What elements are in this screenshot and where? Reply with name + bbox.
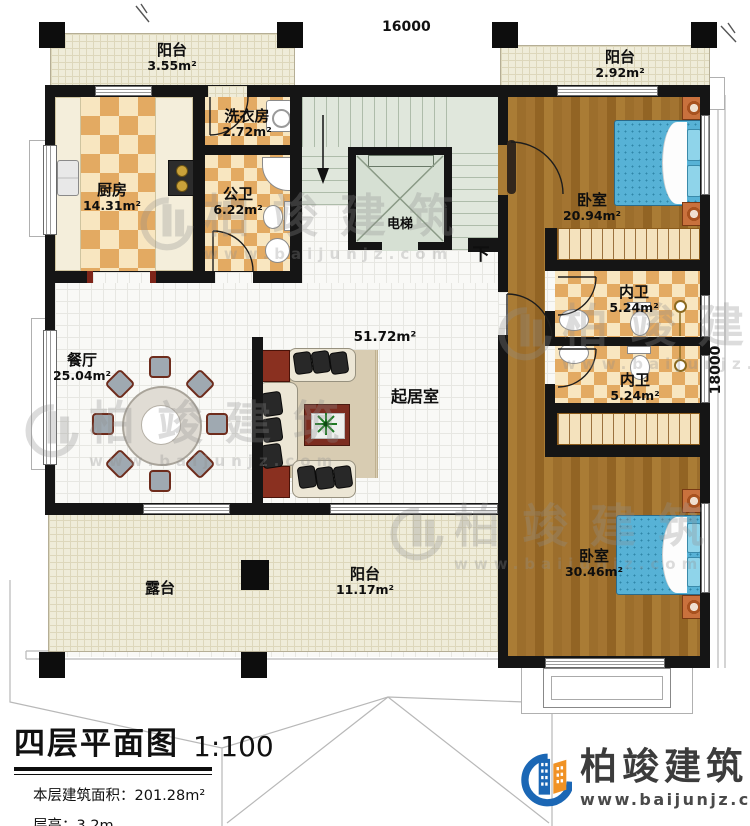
wall [545,228,557,271]
corridor-tile [302,250,498,283]
wardrobe-top [557,228,700,260]
room-label-ensuite-1: 内卫5.24m² [609,284,658,315]
dimension-right: 18000 [708,338,724,402]
room-label-kitchen: 厨房14.31m² [83,182,141,213]
side-table-1 [260,350,290,382]
bed-top-pillow-1 [687,129,701,161]
wall [545,260,710,271]
side-table-2 [260,466,290,498]
stair-down-label: 下 [473,246,490,265]
ensuite2-shower-head [674,359,687,372]
wardrobe-bottom [557,413,700,445]
bed-top-pillow-2 [687,165,701,197]
bay-window-inner-line [551,676,663,700]
ensuite1-sink [559,309,589,331]
stove-burner [176,180,188,192]
bedroom-top-door-leaf [507,140,516,194]
stair-treads-left [302,147,348,205]
note-floor-height: 层高：3.2m [33,814,274,826]
room-label-bedroom-bottom: 卧室30.46m² [565,548,623,579]
wall [545,445,710,457]
room-label-elevator: 电梯 [387,218,413,233]
wall [252,337,263,503]
wall [290,85,302,283]
dining-table-center [141,405,181,445]
wall [545,311,555,337]
door-opening-laundry-balcony [208,86,247,97]
brand-url: www.baijunjz.com [580,790,750,809]
bed-bottom-pillow-2 [687,557,701,587]
dining-chair [206,413,228,435]
stair-treads-right [452,147,498,250]
room-label-bedroom-top: 卧室20.94m² [563,192,621,223]
sofa-cushion [260,391,283,418]
coffee-table [304,404,350,446]
room-label-dining: 餐厅25.04m² [53,352,111,383]
floor-plan-canvas: 柏竣建筑 www.baijunjz.com 柏竣建筑 www.baijunjz.… [0,0,750,826]
room-label-living: 起居室 [391,388,439,406]
sofa-cushion [260,443,283,470]
wall [193,85,205,283]
window-bedroom-bottom-bay [545,658,665,668]
column [39,22,65,48]
window-living-balcony [330,504,498,514]
stove-burner [176,165,188,177]
sofa-cushion [333,465,354,489]
bed-bottom-duvet [662,517,687,593]
title-block: 四层平面图 1:100 本层建筑面积：201.28m² 层高：3.2m [14,718,274,826]
coffee-table-glass [311,413,345,439]
window-bedroom-top-balcony [557,86,658,96]
window-dining-left [43,330,57,465]
brand-logo-icon [520,748,572,812]
room-label-balcony-top-right: 阳台2.92m² [595,49,644,80]
column [492,22,518,48]
sofa-cushion [329,351,350,375]
sofa-cushion [311,350,332,374]
window-bedroom-bottom-right [701,503,710,593]
terrace-floor [48,505,502,652]
bed-bottom-pillow-1 [687,523,701,553]
wall [545,384,555,403]
ensuite2-toilet-tank [627,346,651,354]
window-dining-terrace [143,504,230,514]
bed-top-duvet [662,122,687,204]
bed-top [614,120,704,206]
window-ensuite1-right [701,295,710,337]
room-label-laundry: 洗衣房2.72m² [222,108,271,139]
bed-bottom [616,515,704,595]
window-kitchen-left [43,145,57,235]
dining-chair [149,356,171,378]
note-floor-area: 本层建筑面积：201.28m² [33,784,274,805]
door-opening-kitchen [93,272,150,283]
window-bedroom-top-right [701,115,710,195]
door-opening-hall [498,292,508,335]
room-label-public-bath: 公卫6.22m² [213,186,262,217]
column [241,560,269,590]
dining-chair [92,413,114,435]
sofa-cushion [297,465,318,489]
elevator-counterweight [368,155,434,167]
room-label-balcony-bottom: 阳台11.17m² [336,566,394,597]
window-sill-top-right [708,77,725,110]
dining-chair [149,470,171,492]
wall [545,403,557,457]
column [241,652,267,678]
drawing-title: 四层平面图 [14,718,179,763]
drawing-scale: 1:100 [193,730,274,763]
wall [545,403,710,413]
kitchen-sink [57,160,79,196]
room-label-living-area: 51.72m² [354,330,417,345]
stair-treads-top [302,97,452,147]
room-label-terrace: 露台 [145,580,175,597]
stair-landing-tile [302,205,348,250]
public-bath-toilet-bowl [263,205,283,229]
public-bath-sink [265,238,290,263]
door-opening-public-bath [215,272,253,283]
title-underline-thin [14,774,212,775]
column [277,22,303,48]
wall [205,145,290,155]
title-underline [14,767,212,771]
brand-logo: 柏竣建筑 www.baijunjz.com [520,748,750,812]
washer-drum [272,109,291,128]
kitchen-stove [168,160,194,196]
room-label-balcony-top-left: 阳台3.55m² [147,42,196,73]
bedroom-hall-floor [508,260,545,457]
ensuite1-shower-head [674,300,687,313]
sofa-cushion [260,417,283,444]
dimension-top: 16000 [382,19,431,35]
wall [545,337,710,346]
door-jamb-mark [150,271,156,283]
door-jamb-mark [87,271,93,283]
column [39,652,65,678]
column [691,22,717,48]
brand-name: 柏竣建筑 [580,748,750,785]
elevator-door-gap [382,241,418,251]
window-kitchen-balcony [95,86,152,96]
room-label-ensuite-2: 内卫5.24m² [610,372,659,403]
